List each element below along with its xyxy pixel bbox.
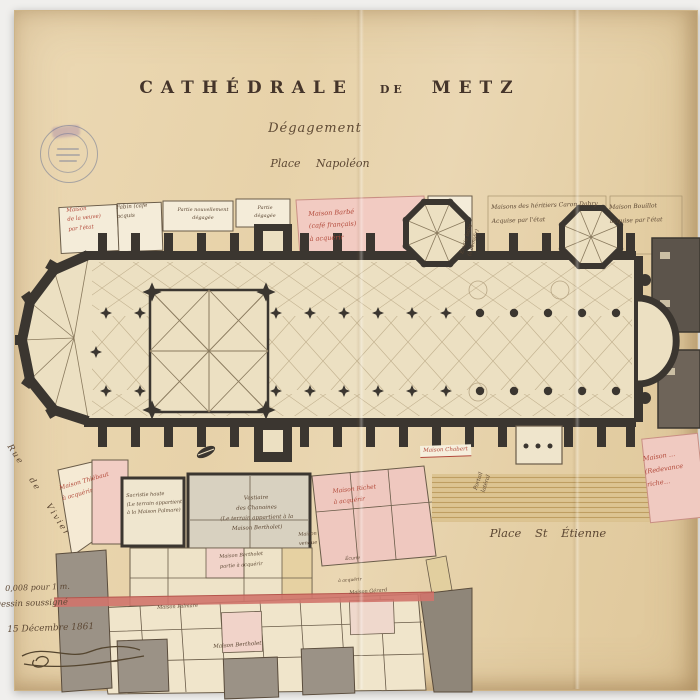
stamp-inner-ring (48, 133, 88, 173)
label-maison-bouillot: Maison Bouillot acquise par l'état (609, 198, 690, 228)
label-vestiaire-chanoines: Vestiaire des Chanoines (Le terrain appa… (204, 492, 309, 535)
title-word-cathedrale: CATHÉDRALE (139, 78, 353, 98)
stamp-text-line (59, 160, 77, 162)
south-tower-core (263, 430, 283, 452)
label-partie-degagee-1: Partie nouvellement dégagée (167, 206, 239, 222)
north-tower-core (263, 231, 283, 251)
crossing-star-vault (150, 290, 268, 412)
octagonal-chapel-north-1 (403, 199, 472, 268)
label-maison-chabert: Maison Chabert (420, 444, 471, 458)
footer-scale: 0,008 pour 1 m. (5, 581, 70, 596)
label-fabin-cafe: Fabin (café acquis (116, 201, 163, 222)
footer-drawn-by: Dessin soussigné (0, 596, 68, 612)
signature-flourish-icon (14, 634, 154, 678)
label-maison-barbe: Maison Barbé (café français) à acquérir (308, 203, 402, 245)
lateral-portal (516, 426, 562, 464)
subtitle-place-napoleon: Place Napoléon (245, 155, 395, 173)
stamp-text-line (56, 154, 80, 156)
stamp-text-line (57, 148, 79, 150)
title-word-metz: METZ (432, 78, 521, 98)
label-sacristie-haute: Sacristie haute (Le terrain appartient à… (126, 489, 189, 518)
label-partie-degagee-2: Partie dégagée (244, 204, 286, 220)
label-caron-dabry: Maisons des héritiers Caron Dabry Acquis… (491, 196, 624, 228)
title-word-de: DE (380, 83, 406, 96)
terrain-hatch-band (432, 474, 662, 522)
archive-round-stamp-icon (40, 125, 98, 183)
label-place-st-etienne: Place St Étienne (478, 524, 618, 542)
scanned-plan-page: CATHÉDRALE DE METZ Dégagement Place Napo… (0, 0, 700, 700)
drawing-title: CATHÉDRALE DE METZ (160, 78, 500, 98)
subtitle-degagement: Dégagement (240, 119, 390, 140)
label-maison-vendue: Maison vendue (298, 527, 351, 549)
